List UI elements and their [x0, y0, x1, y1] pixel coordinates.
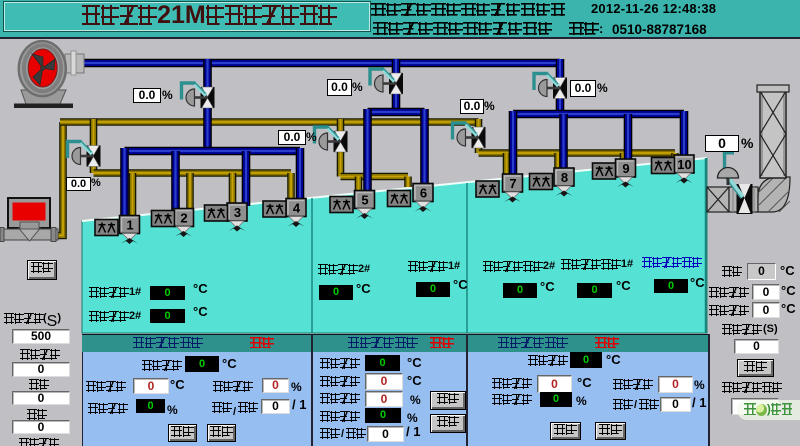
svg-text:9: 9	[622, 161, 629, 176]
svg-text:2: 2	[180, 211, 187, 226]
svg-text:3: 3	[234, 205, 241, 220]
svg-text:8: 8	[561, 170, 568, 185]
svg-text:1: 1	[126, 218, 133, 233]
svg-text:7: 7	[509, 176, 516, 191]
svg-text:5: 5	[361, 193, 368, 208]
svg-text:6: 6	[420, 186, 427, 201]
svg-text:10: 10	[677, 157, 691, 172]
svg-text:4: 4	[293, 201, 301, 216]
